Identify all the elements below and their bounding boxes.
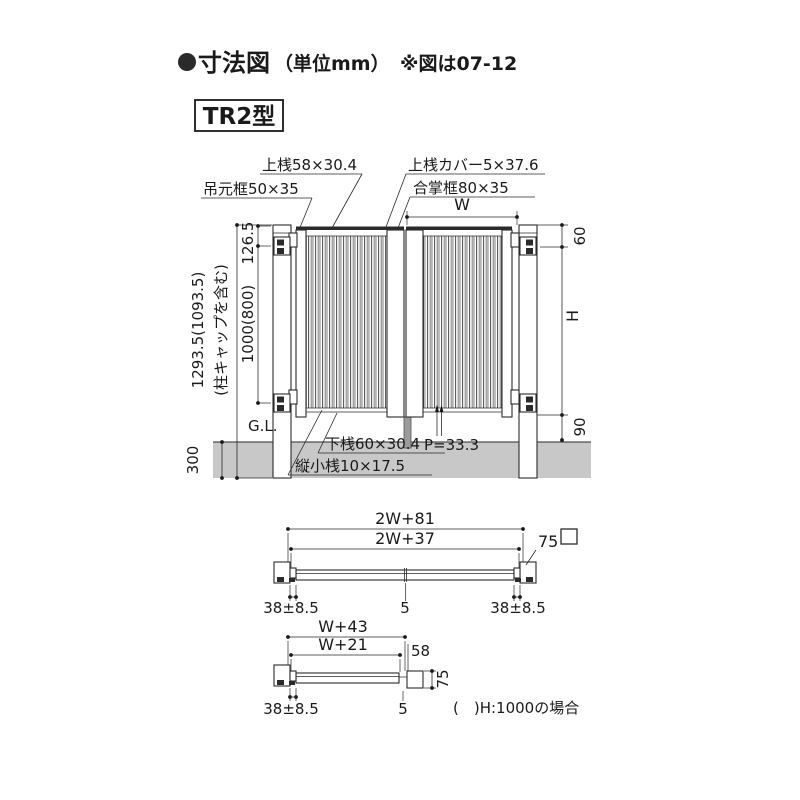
dim-right-gap-double: 38±8.5 bbox=[490, 599, 546, 617]
meeting-stile-left bbox=[387, 230, 404, 417]
dim-leaf-width-value: W bbox=[454, 195, 470, 214]
svg-text:下桟60×30.4: 下桟60×30.4 bbox=[325, 435, 420, 453]
height-note: ( )H:1000の場合 bbox=[453, 699, 579, 717]
title-heading: 寸法図 bbox=[198, 49, 270, 77]
ground-level-label: G.L. bbox=[248, 417, 278, 435]
right-post bbox=[519, 225, 537, 478]
right-gate-leaf bbox=[406, 227, 512, 418]
plan-double-gate: 2W+81 2W+37 75 38±8.5 bbox=[263, 509, 577, 617]
left-gate-leaf bbox=[296, 227, 404, 418]
dim-post-height: 1293.5(1093.5) (柱キャップを含む) bbox=[189, 223, 272, 480]
hanging-stile-right bbox=[502, 230, 512, 417]
plan-post-right-single bbox=[407, 671, 423, 688]
drawing-canvas: 寸法図 （単位mm） ※図は07-12 TR2型 bbox=[0, 0, 800, 800]
dim-leaf-width: W bbox=[405, 195, 519, 225]
dim-inner-width-double: 2W+37 bbox=[375, 529, 435, 548]
bullet-icon bbox=[178, 53, 196, 71]
plan-post-left-single bbox=[274, 665, 296, 686]
slat-panel-right bbox=[423, 236, 502, 408]
dim-right-heights: 60 H 90 bbox=[537, 223, 589, 442]
dim-hinge-positions: 126.5 1000(800) bbox=[239, 222, 271, 405]
dim-top-offset-value: 60 bbox=[571, 226, 589, 245]
dim-post-height-note: (柱キャップを含む) bbox=[212, 264, 230, 396]
dim-hinge-span-value: 1000(800) bbox=[239, 285, 257, 364]
gate-bar-plan-single bbox=[296, 673, 399, 683]
square-symbol bbox=[561, 529, 577, 544]
title-unit: （単位mm） bbox=[274, 52, 390, 75]
meeting-stile-right bbox=[406, 230, 423, 417]
dim-center-gap-double: 5 bbox=[400, 599, 410, 617]
plan-post-left bbox=[274, 562, 296, 583]
plan-post-right bbox=[514, 562, 536, 583]
dimension-drawing-page: 寸法図 （単位mm） ※図は07-12 TR2型 bbox=[0, 0, 800, 800]
elevation-drawing: 1293.5(1093.5) (柱キャップを含む) 126.5 1000(800… bbox=[184, 156, 591, 480]
svg-text:合掌框80×35: 合掌框80×35 bbox=[413, 179, 509, 197]
svg-text:P=33.3: P=33.3 bbox=[424, 436, 479, 454]
title-note: ※図は07-12 bbox=[400, 53, 517, 75]
svg-text:75: 75 bbox=[434, 669, 452, 688]
left-post bbox=[273, 225, 291, 478]
label-post-size-double: 75 bbox=[526, 529, 577, 565]
gate-bar-plan-double bbox=[296, 570, 514, 580]
dim-left-gap-double: 38±8.5 bbox=[263, 599, 319, 617]
dim-overall-width-single: W+43 bbox=[318, 617, 368, 636]
svg-text:75: 75 bbox=[538, 532, 558, 551]
slat-panel-left bbox=[306, 236, 387, 408]
svg-text:吊元框50×35: 吊元框50×35 bbox=[203, 180, 299, 198]
svg-text:上桟カバー5×37.6: 上桟カバー5×37.6 bbox=[408, 156, 539, 174]
dim-height-value: H bbox=[563, 310, 582, 322]
dim-embed-value: 300 bbox=[184, 446, 202, 475]
dim-center-gap-single: 5 bbox=[398, 700, 408, 718]
svg-text:上桟58×30.4: 上桟58×30.4 bbox=[262, 156, 357, 174]
dim-overall-width-double: 2W+81 bbox=[375, 509, 435, 528]
dim-bottom-clearance-value: 90 bbox=[571, 417, 589, 436]
svg-text:縦小桟10×17.5: 縦小桟10×17.5 bbox=[295, 457, 405, 475]
plan-single-gate: W+43 W+21 58 75 38±8.5 5 ( )H:1000の場合 bbox=[263, 617, 579, 718]
dim-inner-width-single: W+21 bbox=[318, 635, 368, 654]
dim-post-height-value: 1293.5(1093.5) bbox=[189, 272, 207, 389]
hanging-stile-left bbox=[296, 230, 306, 417]
dim-stile-single: 58 bbox=[411, 642, 430, 660]
dim-post-size-single: 75 bbox=[424, 669, 452, 690]
page-title: 寸法図 （単位mm） ※図は07-12 bbox=[178, 49, 517, 77]
model-label-box: TR2型 bbox=[195, 100, 283, 131]
dim-left-gap-single: 38±8.5 bbox=[263, 700, 319, 718]
model-label: TR2型 bbox=[203, 104, 275, 130]
dim-hinge-top-value: 126.5 bbox=[239, 222, 257, 265]
